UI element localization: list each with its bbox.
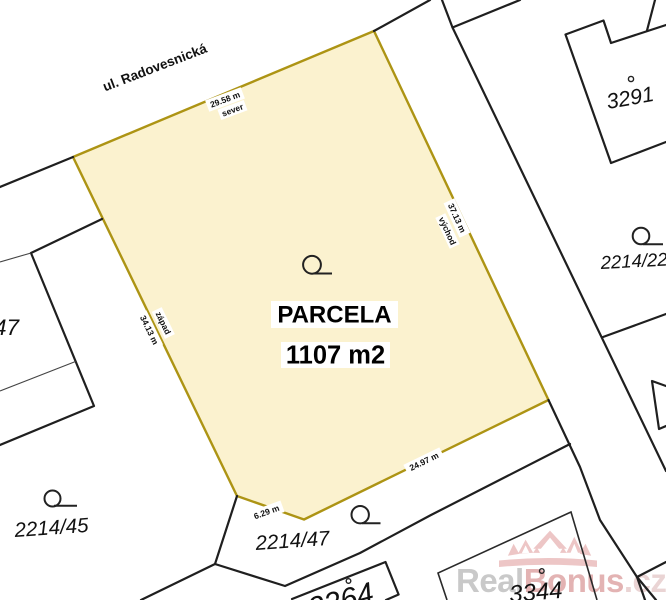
svg-text:1107 m2: 1107 m2	[286, 342, 385, 370]
svg-text:PARCELA: PARCELA	[277, 302, 391, 329]
svg-text:3344: 3344	[508, 577, 564, 600]
svg-text:2214/22: 2214/22	[599, 248, 666, 273]
svg-text:47: 47	[0, 315, 21, 340]
